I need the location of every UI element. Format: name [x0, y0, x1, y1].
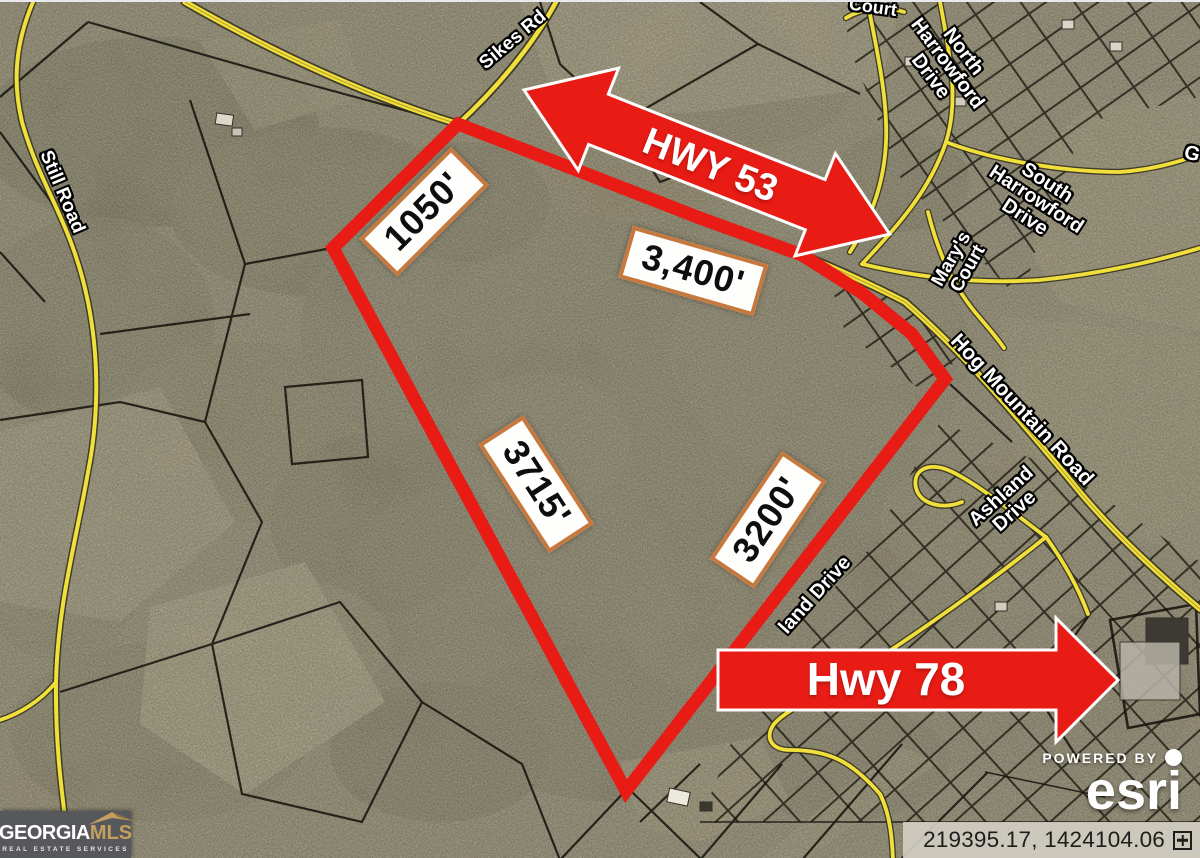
mls-swoosh-icon: [88, 812, 134, 825]
expand-map-icon[interactable]: [1173, 831, 1192, 850]
mls-logo-secondary: MLS: [90, 823, 132, 843]
map-coordinates: 219395.17, 1424104.06: [923, 827, 1165, 853]
aerial-map-viewport: Sikes Rd Still Road Court North Harrowfo…: [0, 0, 1200, 858]
esri-attribution: POWERED BY esri: [1042, 749, 1182, 816]
esri-logo-text: esri: [1042, 768, 1182, 816]
coordinate-statusbar: 219395.17, 1424104.06: [903, 822, 1200, 858]
mls-logo-primary: GEORGIA: [0, 823, 90, 843]
georgia-mls-logo: GEORGIAMLS REAL ESTATE SERVICES: [0, 811, 131, 858]
aerial-basemap: [0, 2, 1200, 858]
mls-logo-tagline: REAL ESTATE SERVICES: [2, 846, 129, 853]
hwy78-arrow-label: Hwy 78: [807, 652, 966, 706]
